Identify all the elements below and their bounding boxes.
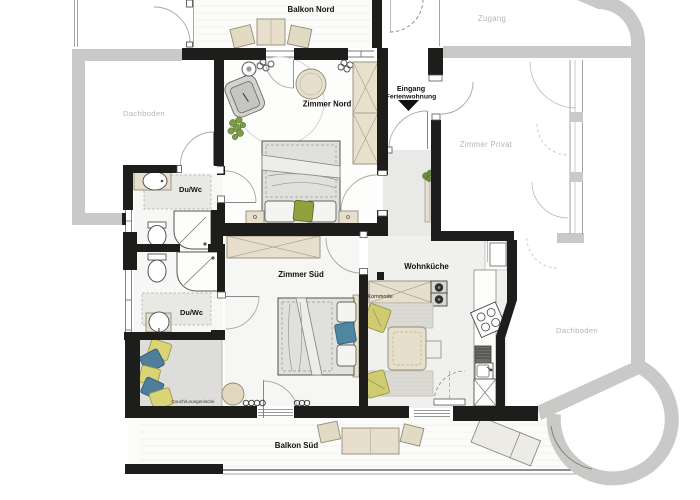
svg-text:Dachboden: Dachboden <box>123 109 165 118</box>
svg-text:Eingang: Eingang <box>397 84 425 93</box>
svg-text:Dachboden: Dachboden <box>556 326 598 335</box>
svg-text:Kommode: Kommode <box>367 294 393 300</box>
svg-text:Balkon Nord: Balkon Nord <box>288 5 335 14</box>
svg-text:Du/Wc: Du/Wc <box>179 185 202 194</box>
svg-text:Du/Wc: Du/Wc <box>180 308 203 317</box>
svg-text:Zimmer Privat: Zimmer Privat <box>460 140 513 149</box>
svg-text:Zimmer Süd: Zimmer Süd <box>278 270 324 279</box>
svg-text:Balkon Süd: Balkon Süd <box>275 441 319 450</box>
svg-text:Zimmer Nord: Zimmer Nord <box>303 100 352 109</box>
svg-text:Zugang: Zugang <box>478 14 506 23</box>
svg-text:Wohnküche: Wohnküche <box>404 262 449 271</box>
svg-text:Couch/Loungenische: Couch/Loungenische <box>171 399 215 404</box>
svg-text:Ferienwohnung: Ferienwohnung <box>386 94 437 101</box>
